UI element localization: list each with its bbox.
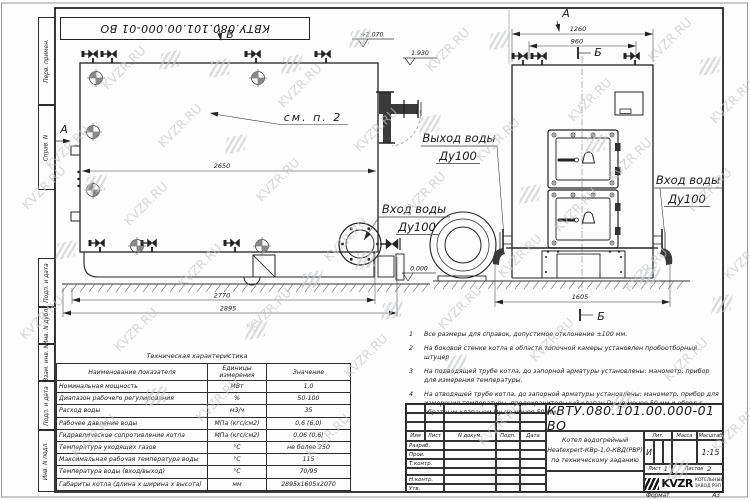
table-cell: 2895х1605х2070 <box>267 478 351 490</box>
title-block-cell: Лист <box>425 431 444 441</box>
sheets-label: Листов <box>685 466 704 472</box>
title-block-empty-cell <box>425 413 444 422</box>
ground-line <box>62 281 690 292</box>
title-block-empty-cell <box>406 422 425 431</box>
section-letter-b-bottom: Б <box>597 310 605 323</box>
section-letter-b-top: Б <box>594 46 602 59</box>
note-number: 2 <box>406 345 424 363</box>
dim-1260: 1260 <box>570 25 587 33</box>
table-cell: м3/ч <box>208 405 267 417</box>
title-block-empty-cell <box>444 422 496 431</box>
title-block-empty-cell <box>425 404 444 413</box>
title-block-cell: Пров. <box>406 450 444 459</box>
table-cell: Температура воды (вход/выход) <box>57 466 208 478</box>
product-name: Котел водогрейный Heatexpert-КВр-1,0-КВД… <box>546 431 644 471</box>
table-row: Температура воды (вход/выход)°С70/95 <box>57 466 351 478</box>
title-block-empty-cell <box>425 422 444 431</box>
note-number: 1 <box>406 331 424 340</box>
strip-cell-label: Подп. и дата <box>44 386 50 426</box>
title-block-empty-cell <box>520 450 546 459</box>
table-cell: 35 <box>267 405 351 417</box>
title-block-empty-cell <box>496 459 520 468</box>
title-block-empty-cell <box>496 441 520 450</box>
title-block-empty-cell <box>496 404 520 413</box>
dim-2770: 2770 <box>214 292 231 300</box>
strip-cell-label: Подп. и дата <box>44 263 50 303</box>
tech-table-grid: Наименование показателяЕдиницы измерения… <box>56 363 351 491</box>
tech-table: Наименование показателяЕдиницы измерения… <box>56 363 351 491</box>
tech-table-header: Единицы измерения <box>208 364 267 381</box>
title-block-empty-cell <box>444 413 496 422</box>
drawing-sheet: 2650 2770 2895 1260 960 1605 В А А Б Б +… <box>0 0 750 500</box>
title-block-empty-cell <box>406 468 444 475</box>
strip-cell-3: Инв. N дубл. <box>38 307 55 344</box>
title-block-empty-cell <box>444 484 496 493</box>
title-block-empty-cell <box>520 422 546 431</box>
title-block-cell: Н.контр. <box>406 475 444 484</box>
title-block-empty-cell <box>520 404 546 413</box>
strip-cell-label: Инв. N подл. <box>44 442 50 480</box>
table-cell: °С <box>208 466 267 478</box>
title-block-empty-cell <box>496 468 520 475</box>
title-block-empty-cell <box>444 404 496 413</box>
title-block-empty-cell <box>496 422 520 431</box>
product-name-line3: по техническому заданию <box>551 456 639 466</box>
product-name-line2: Heatexpert-КВр-1,0-КВД(РВР) <box>547 446 643 456</box>
view-letter-a-side: А <box>59 123 68 136</box>
strip-cell-4: Взам. инв. N <box>38 344 55 381</box>
title-block-empty-cell <box>520 459 546 468</box>
tech-table-header: Значение <box>267 364 351 381</box>
tech-table-title: Техническая характеристика <box>57 352 337 360</box>
title-block-empty-cell <box>444 459 496 468</box>
table-cell: 0,06 (0,6) <box>267 429 351 441</box>
title-block-empty-cell <box>406 413 425 422</box>
note-item: 1Все размеры для справок, допустимое отк… <box>406 331 720 340</box>
dimensions <box>56 21 722 321</box>
strip-cell-label: Инв. N дубл. <box>44 307 50 345</box>
empty-cell <box>546 471 644 493</box>
strip-cell-label: Взам. инв. N <box>44 344 50 382</box>
title-block-empty-cell <box>444 475 496 484</box>
title-block-empty-cell <box>496 484 520 493</box>
table-cell: Температура уходящих газов <box>57 441 208 453</box>
table-row: Диапазон рабочего регулирования%50-100 <box>57 393 351 405</box>
format-value: А3 <box>712 493 720 499</box>
table-cell: Рабочее давление воды <box>57 417 208 429</box>
table-cell: 115 <box>267 454 351 466</box>
title-block-empty-cell <box>444 450 496 459</box>
title-block-empty-cell <box>520 413 546 422</box>
strip-cell-5: Подп. и дата <box>38 381 55 430</box>
table-cell: не более 250 <box>267 441 351 453</box>
sheets-cell: Листов 2 <box>672 464 724 474</box>
boiler-side-view <box>71 50 421 285</box>
table-row: Гидравлическое сопротивление котлаМПа (к… <box>57 429 351 441</box>
table-cell: 70/95 <box>267 466 351 478</box>
label-water-inlet: Вход воды <box>382 202 446 216</box>
top-stamp-text: КВТУ.080.101.00.000-01 ВО <box>100 22 270 35</box>
title-block-cell: Утв. <box>406 484 444 493</box>
label-water-outlet-dn: Ду100 <box>438 149 477 163</box>
strip-cell-1: Справ. N <box>38 105 55 190</box>
title-block-empty-cell <box>444 441 496 450</box>
table-row: Расход водым3/ч35 <box>57 405 351 417</box>
title-block-empty-cell <box>520 484 546 493</box>
company-logo-cell: KVZR КОТЕЛЬНЫЙ ЗАВОД РЭП <box>644 474 724 493</box>
mass-header: Масса <box>672 431 697 440</box>
company-name: КОТЕЛЬНЫЙ ЗАВОД РЭП <box>695 478 724 489</box>
title-block-empty-cell <box>406 404 425 413</box>
sheet-label: Лист <box>648 466 661 472</box>
lit-value: И <box>644 440 654 464</box>
table-row: Температура уходящих газов°Сне более 250 <box>57 441 351 453</box>
table-cell: МПа (кгс/см2) <box>208 417 267 429</box>
lit-cell-2 <box>654 440 663 464</box>
title-block-empty-cell <box>520 468 546 475</box>
product-name-line1: Котел водогрейный <box>562 436 628 446</box>
label-water-inlet-dn: Ду100 <box>397 220 436 234</box>
title-block-cell: Разраб. <box>406 441 444 450</box>
tech-table-header: Наименование показателя <box>57 364 208 381</box>
callout-see-item-2: см. п. 2 <box>284 111 343 124</box>
sheets-value: 2 <box>707 465 711 473</box>
title-block-empty-cell <box>520 441 546 450</box>
annotation-texts: 2650 2770 2895 1260 960 1605 В А А Б Б +… <box>59 7 720 323</box>
table-cell: МПа (кгс/см2) <box>208 429 267 441</box>
title-block-cell: N докум. <box>444 431 496 441</box>
doc-number: КВТУ.080.101.00.000-01 ВО <box>546 404 724 431</box>
mass-value <box>672 440 697 464</box>
note-item: 3На подводящей трубе котла, до запорной … <box>406 368 720 386</box>
table-cell: Диапазон рабочего регулирования <box>57 393 208 405</box>
note-number: 3 <box>406 368 424 386</box>
elevation-top: +2.070 <box>361 32 384 39</box>
fan-blower <box>430 212 496 281</box>
table-cell: Расход воды <box>57 405 208 417</box>
scale-value: 1:15 <box>697 440 724 464</box>
table-cell: Гидравлическое сопротивление котла <box>57 429 208 441</box>
strip-cell-label: Справ. N <box>44 134 50 161</box>
table-cell: мм <box>208 478 267 490</box>
title-block-empty-cell <box>496 413 520 422</box>
label-water-outlet: Выход воды <box>422 131 495 145</box>
table-cell: Габариты котла (длина х ширина х высота) <box>57 478 208 490</box>
table-cell: Максимальная рабочая температура воды <box>57 454 208 466</box>
table-cell: °С <box>208 454 267 466</box>
elevation-zero: 0.000 <box>410 266 428 273</box>
sheet-value: 1 <box>664 465 668 473</box>
table-cell: Номинальная мощность <box>57 381 208 393</box>
lit-cell-3 <box>663 440 672 464</box>
title-block-cell: Подп. <box>496 431 520 441</box>
title-block-cell: Т.контр. <box>406 459 444 468</box>
note-text: На подводящей трубе котла, до запорной а… <box>424 368 720 386</box>
title-block-empty-cell <box>496 475 520 484</box>
table-cell: % <box>208 393 267 405</box>
table-cell: 1,0 <box>267 381 351 393</box>
table-cell: °С <box>208 441 267 453</box>
label-water-inlet-front-dn: Ду100 <box>667 192 706 206</box>
dim-960: 960 <box>571 38 583 46</box>
title-block-empty-cell <box>520 475 546 484</box>
table-row: Рабочее давление водыМПа (кгс/см2)0,6 (6… <box>57 417 351 429</box>
scale-header: Масштаб <box>697 431 724 440</box>
elevation-shell: 1.930 <box>411 50 429 57</box>
format-note: Формат А3 <box>646 493 720 499</box>
strip-cell-6: Инв. N подл. <box>38 430 55 492</box>
kvzr-logo-text: KVZR <box>661 477 692 490</box>
table-cell: 50-100 <box>267 393 351 405</box>
strip-cell-label: Перв. примен. <box>44 39 50 83</box>
note-text: Все размеры для справок, допустимое откл… <box>424 331 720 340</box>
table-row: Максимальная рабочая температура воды°С1… <box>57 454 351 466</box>
top-stamp: КВТУ.080.101.00.000-01 ВО <box>60 17 310 40</box>
kvzr-logo-mark <box>644 478 659 490</box>
dim-2650: 2650 <box>214 162 231 170</box>
title-block-empty-cell <box>444 468 496 475</box>
title-block-empty-cell <box>496 450 520 459</box>
table-row: Номинальная мощностьМВт1,0 <box>57 381 351 393</box>
view-letter-a-front: А <box>561 7 570 20</box>
strip-cell-2: Подп. и дата <box>38 258 55 307</box>
table-cell: 0,6 (6,0) <box>267 417 351 429</box>
label-water-inlet-front: Вход воды <box>656 173 720 187</box>
note-text: На боковой стенке котла в области топочн… <box>424 345 720 363</box>
company-line2: ЗАВОД РЭП <box>695 484 724 490</box>
lit-header: Лит. <box>644 431 672 440</box>
title-block: КВТУ.080.101.00.000-01 ВО Котел водогрей… <box>405 403 723 492</box>
table-cell: МВт <box>208 381 267 393</box>
tech-table-header-row: Наименование показателяЕдиницы измерения… <box>57 364 351 381</box>
title-block-cell: Изм <box>406 431 425 441</box>
note-item: 2На боковой стенке котла в области топоч… <box>406 345 720 363</box>
strip-cell-0: Перв. примен. <box>38 17 55 105</box>
title-block-cell: Дата <box>520 431 546 441</box>
sheet-cell: Лист 1 <box>644 464 672 474</box>
dim-2895: 2895 <box>220 305 237 313</box>
format-label: Формат <box>646 493 670 499</box>
dim-1605: 1605 <box>572 293 589 301</box>
table-row: Габариты котла (длина х ширина х высота)… <box>57 478 351 490</box>
